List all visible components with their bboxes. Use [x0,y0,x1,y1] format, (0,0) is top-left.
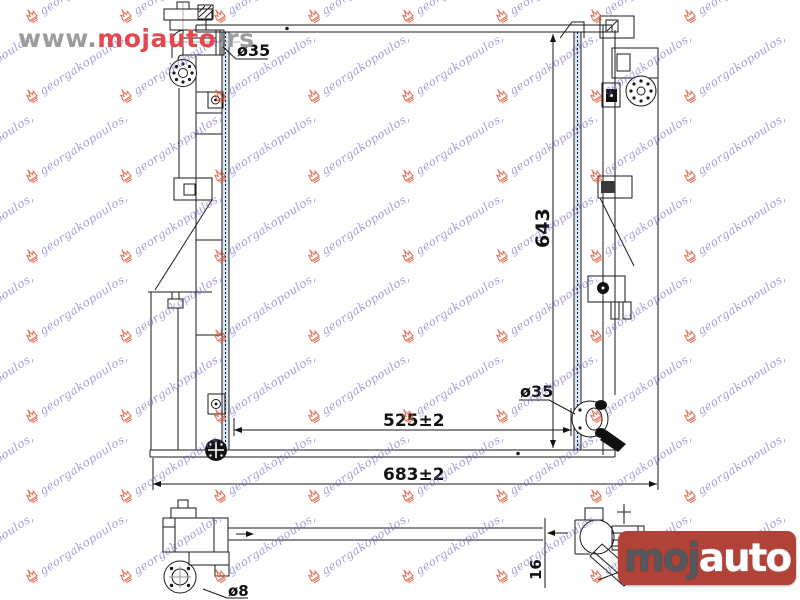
mojauto-logo: mojauto [618,531,796,585]
right-tank [560,22,615,455]
radiator-technical-drawing: 643 525±2 683±2 ø35 ø35 [0,0,800,600]
left-bracket [148,88,212,450]
dim-drain-label: ø8 [228,582,249,600]
drain-plug [205,439,227,461]
logo-text-primary: moj [624,539,699,578]
dim-overall-width-label: 683±2 [383,465,445,485]
site-url-prefix: www. [18,24,97,53]
dim-outlet-label: ø35 [520,382,553,401]
dim-core-height-label: 643 [532,208,554,248]
dim-thickness-label: 16 [527,559,545,580]
left-tank [196,56,222,450]
dim-core-width-label: 525±2 [383,411,445,431]
left-bolt-flange [170,60,197,87]
bottom-view-core-tube [228,528,543,540]
logo-text-secondary: auto [699,539,791,578]
site-url: www.mojauto.rs [18,24,255,53]
screenshot-root: 643 525±2 683±2 ø35 ø35 [0,0,800,600]
bottom-view-left-end [163,500,229,593]
site-url-brand: mojauto [97,24,216,53]
bottom-view: ø8 16 [163,500,644,600]
site-url-suffix: .rs [216,24,254,53]
